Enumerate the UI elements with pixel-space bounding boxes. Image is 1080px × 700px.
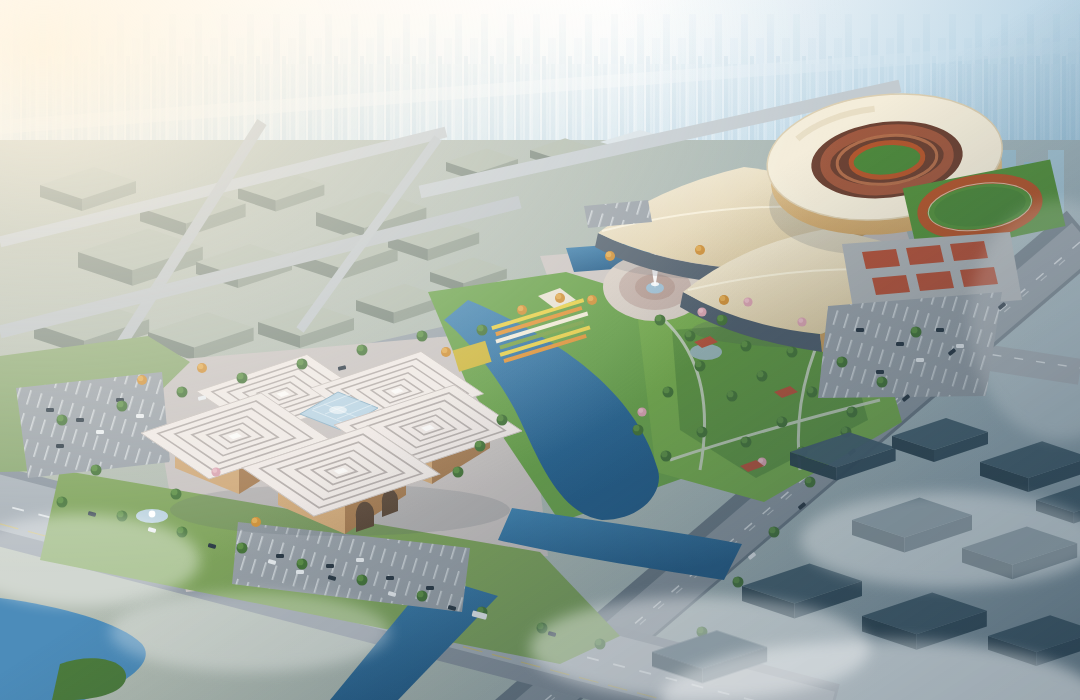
sun-glow [0,0,1080,700]
rendering-canvas [0,0,1080,700]
aerial-rendering [0,0,1080,700]
